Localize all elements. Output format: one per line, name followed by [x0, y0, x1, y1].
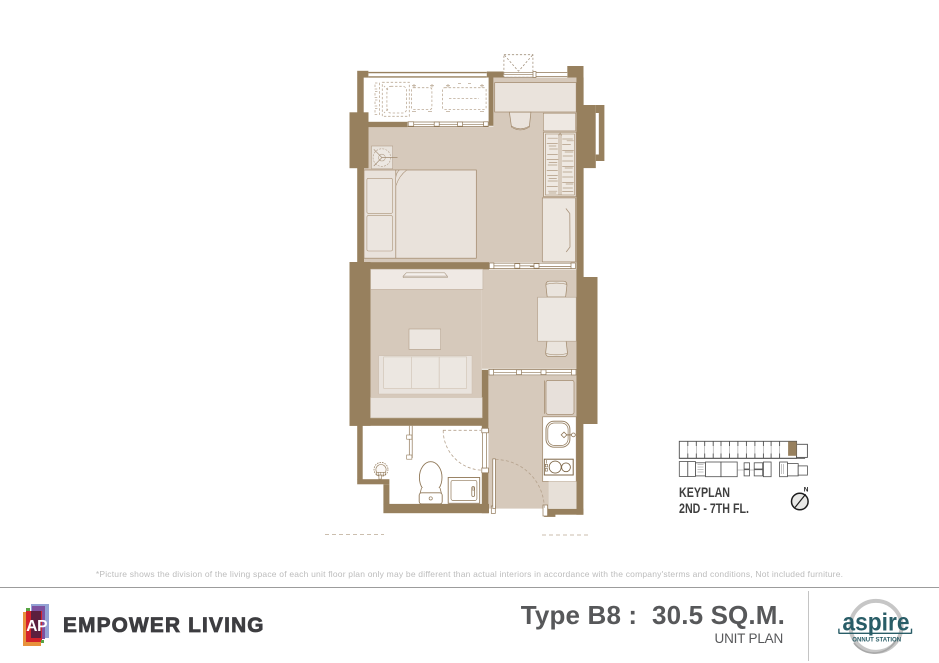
svg-text:N: N	[804, 487, 809, 494]
svg-text:ONNUT STATION: ONNUT STATION	[852, 638, 901, 644]
svg-text:aspire: aspire	[842, 609, 909, 637]
